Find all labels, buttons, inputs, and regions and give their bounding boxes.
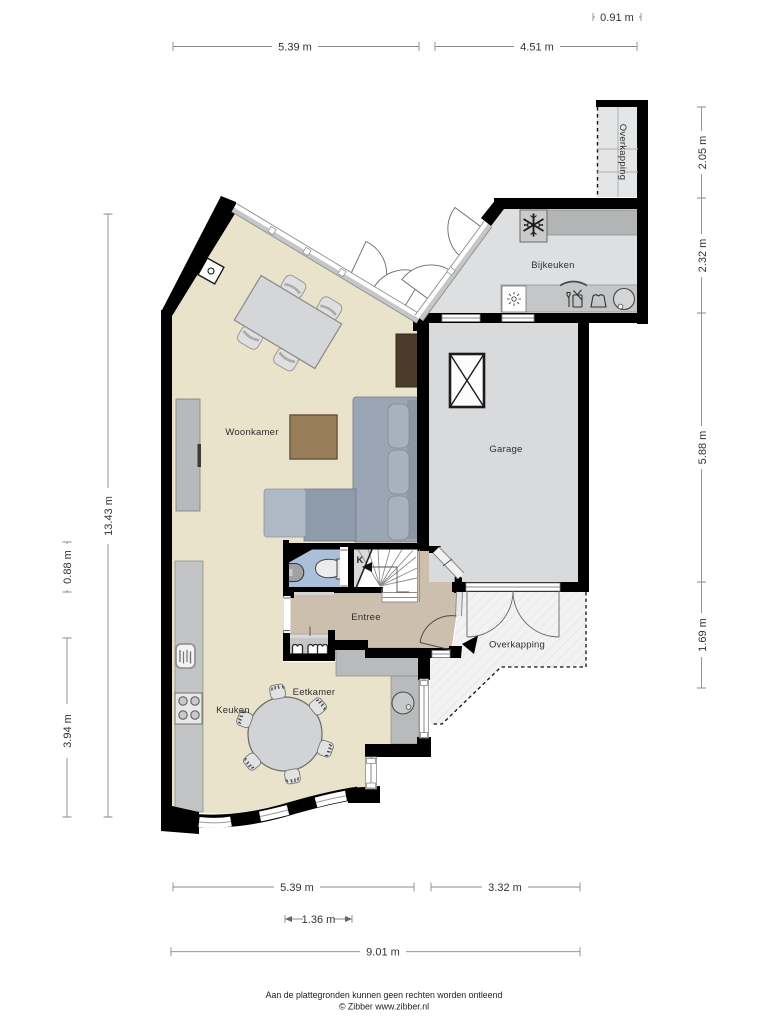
svg-text:1.36 m: 1.36 m: [302, 914, 336, 926]
svg-text:Bijkeuken: Bijkeuken: [531, 260, 574, 271]
svg-text:2.05 m: 2.05 m: [697, 136, 709, 170]
svg-text:K: K: [356, 555, 363, 566]
svg-text:Aan de plattegronden kunnen ge: Aan de plattegronden kunnen geen rechten…: [266, 990, 503, 1000]
svg-text:4.51 m: 4.51 m: [520, 42, 554, 54]
svg-text:0.88 m: 0.88 m: [62, 550, 74, 584]
svg-text:9.01 m: 9.01 m: [366, 947, 400, 959]
svg-text:2.32 m: 2.32 m: [697, 239, 709, 273]
svg-text:© Zibber www.zibber.nl: © Zibber www.zibber.nl: [339, 1002, 429, 1012]
svg-text:Woonkamer: Woonkamer: [225, 427, 278, 438]
svg-text:Overkapping: Overkapping: [617, 124, 628, 181]
svg-text:0.91 m: 0.91 m: [600, 12, 634, 24]
svg-text:5.88 m: 5.88 m: [697, 431, 709, 465]
svg-text:5.39 m: 5.39 m: [280, 882, 314, 894]
svg-text:3.32 m: 3.32 m: [488, 882, 522, 894]
svg-text:Keuken: Keuken: [216, 705, 250, 716]
svg-text:Overkapping: Overkapping: [489, 640, 545, 651]
svg-text:13.43 m: 13.43 m: [103, 496, 115, 536]
svg-text:Garage: Garage: [489, 444, 522, 455]
svg-text:Eetkamer: Eetkamer: [293, 687, 336, 698]
svg-text:Entree: Entree: [351, 612, 381, 623]
svg-text:5.39 m: 5.39 m: [278, 42, 312, 54]
svg-text:1.69 m: 1.69 m: [697, 618, 709, 652]
svg-text:3.94 m: 3.94 m: [62, 714, 74, 748]
